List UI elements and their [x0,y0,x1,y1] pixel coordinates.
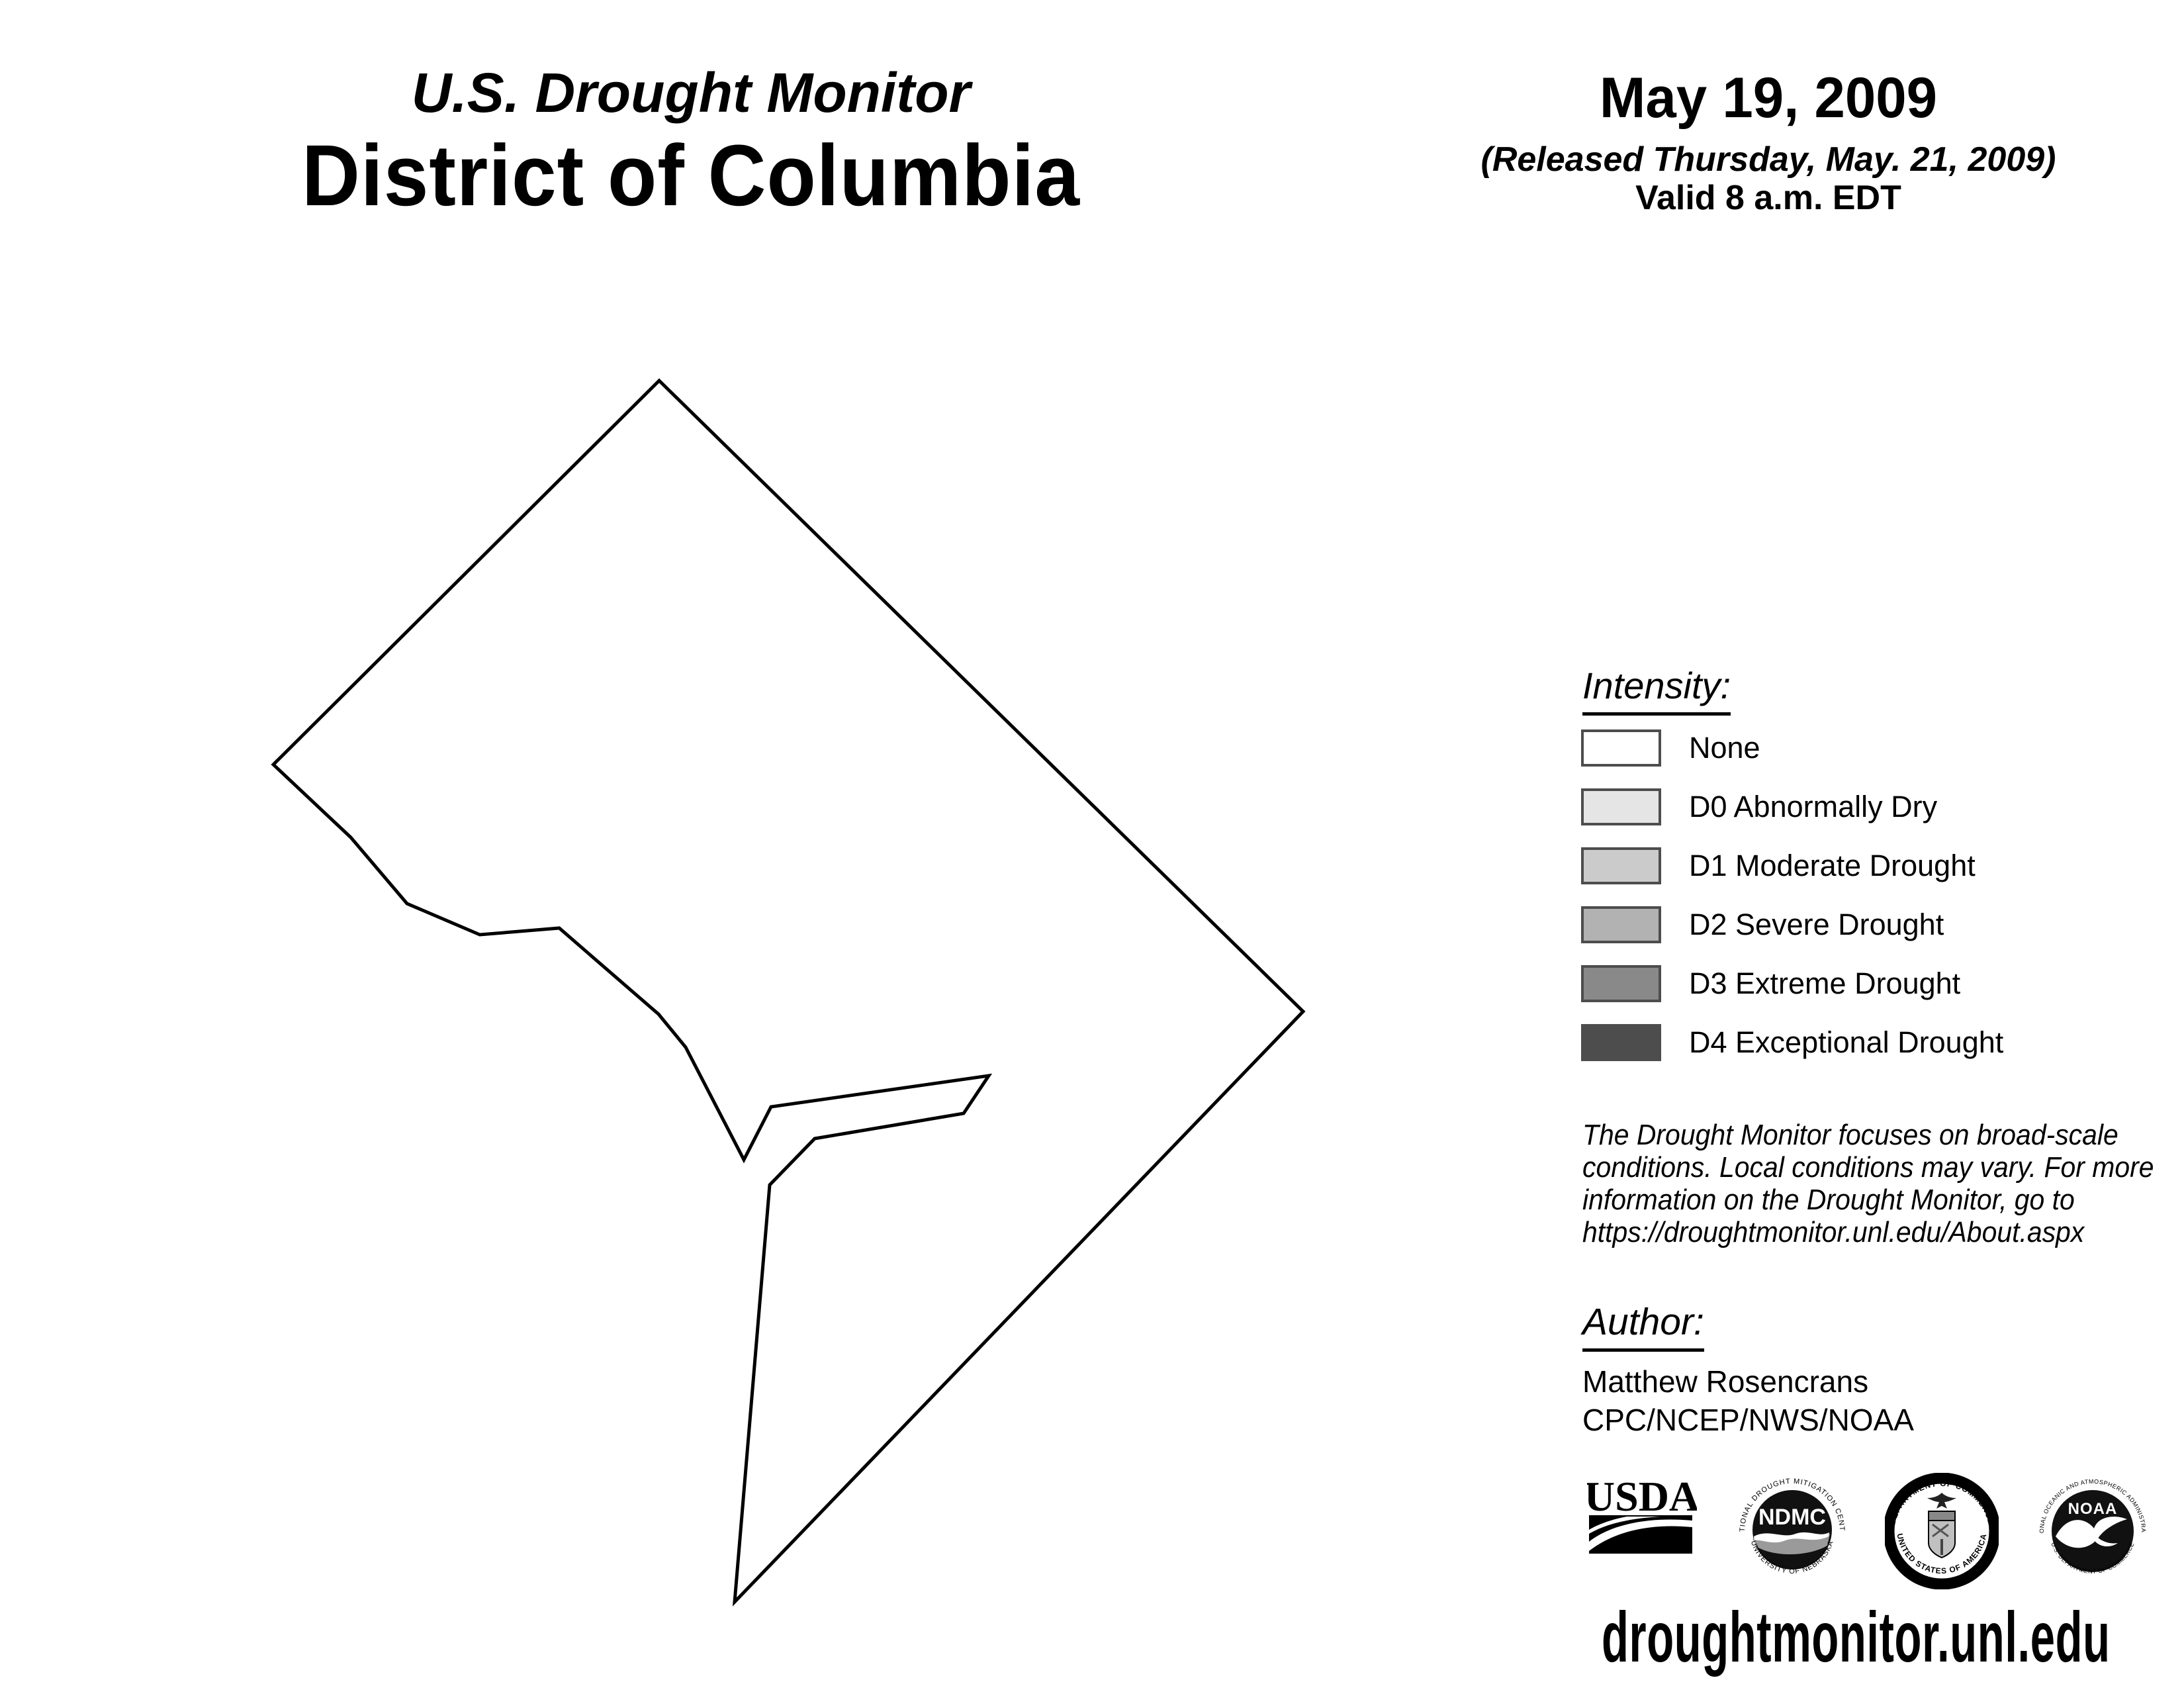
legend-heading: Intensity: [1582,665,1731,716]
disclaimer-line: The Drought Monitor focuses on broad-sca… [1582,1119,2154,1151]
commerce-seal-logo: DEPARTMENT OF COMMERCE UNITED STATES OF … [1885,1473,1999,1589]
page-title: District of Columbia [260,126,1122,225]
usda-logo: USDA [1587,1473,1697,1559]
legend-swatch-d1 [1581,847,1661,884]
legend-label: D1 Moderate Drought [1689,849,1976,883]
ndmc-logo: NATIONAL DROUGHT MITIGATION CENTER UNIVE… [1736,1473,1848,1589]
disclaimer-text: The Drought Monitor focuses on broad-sca… [1582,1119,2154,1248]
legend-swatch-d0 [1581,788,1661,825]
legend-swatch-d2 [1581,906,1661,943]
author-organization: CPC/NCEP/NWS/NOAA [1582,1401,1914,1439]
legend-row-d0: D0 Abnormally Dry [1581,788,2003,825]
intensity-legend: None D0 Abnormally Dry D1 Moderate Droug… [1581,729,2003,1083]
disclaimer-line: https://droughtmonitor.unl.edu/About.asp… [1582,1216,2154,1248]
ndmc-logo-text: NDMC [1758,1505,1826,1530]
legend-label: D2 Severe Drought [1689,908,1944,942]
legend-swatch-none [1581,729,1661,767]
author-heading: Author: [1582,1301,1704,1352]
author-name: Matthew Rosencrans [1582,1362,1914,1401]
legend-row-none: None [1581,729,2003,767]
map-date: May 19, 2009 [1447,65,2089,131]
legend-label: D3 Extreme Drought [1689,966,1960,1001]
legend-label: D0 Abnormally Dry [1689,790,1937,824]
report-title: U.S. Drought Monitor [228,60,1154,126]
release-date: (Released Thursday, May. 21, 2009) [1437,139,2099,180]
author-block: Matthew Rosencrans CPC/NCEP/NWS/NOAA [1582,1362,1914,1439]
noaa-logo-text: NOAA [2068,1500,2118,1518]
legend-row-d2: D2 Severe Drought [1581,906,2003,943]
legend-row-d1: D1 Moderate Drought [1581,847,2003,884]
noaa-logo: NATIONAL OCEANIC AND ATMOSPHERIC ADMINIS… [2036,1473,2150,1589]
legend-swatch-d4 [1581,1024,1661,1061]
droughtmonitor-url: droughtmonitor.unl.edu [1602,1599,2111,1675]
dc-outline [273,381,1303,1602]
valid-time: Valid 8 a.m. EDT [1437,177,2099,218]
legend-swatch-d3 [1581,965,1661,1002]
legend-row-d3: D3 Extreme Drought [1581,965,2003,1002]
legend-label: D4 Exceptional Drought [1689,1025,2003,1060]
disclaimer-line: conditions. Local conditions may vary. F… [1582,1151,2154,1184]
legend-row-d4: D4 Exceptional Drought [1581,1024,2003,1061]
usda-logo-text: USDA [1587,1473,1697,1520]
drought-monitor-page: U.S. Drought Monitor District of Columbi… [0,0,2184,1688]
disclaimer-line: information on the Drought Monitor, go t… [1582,1184,2154,1216]
legend-label: None [1689,731,1760,765]
